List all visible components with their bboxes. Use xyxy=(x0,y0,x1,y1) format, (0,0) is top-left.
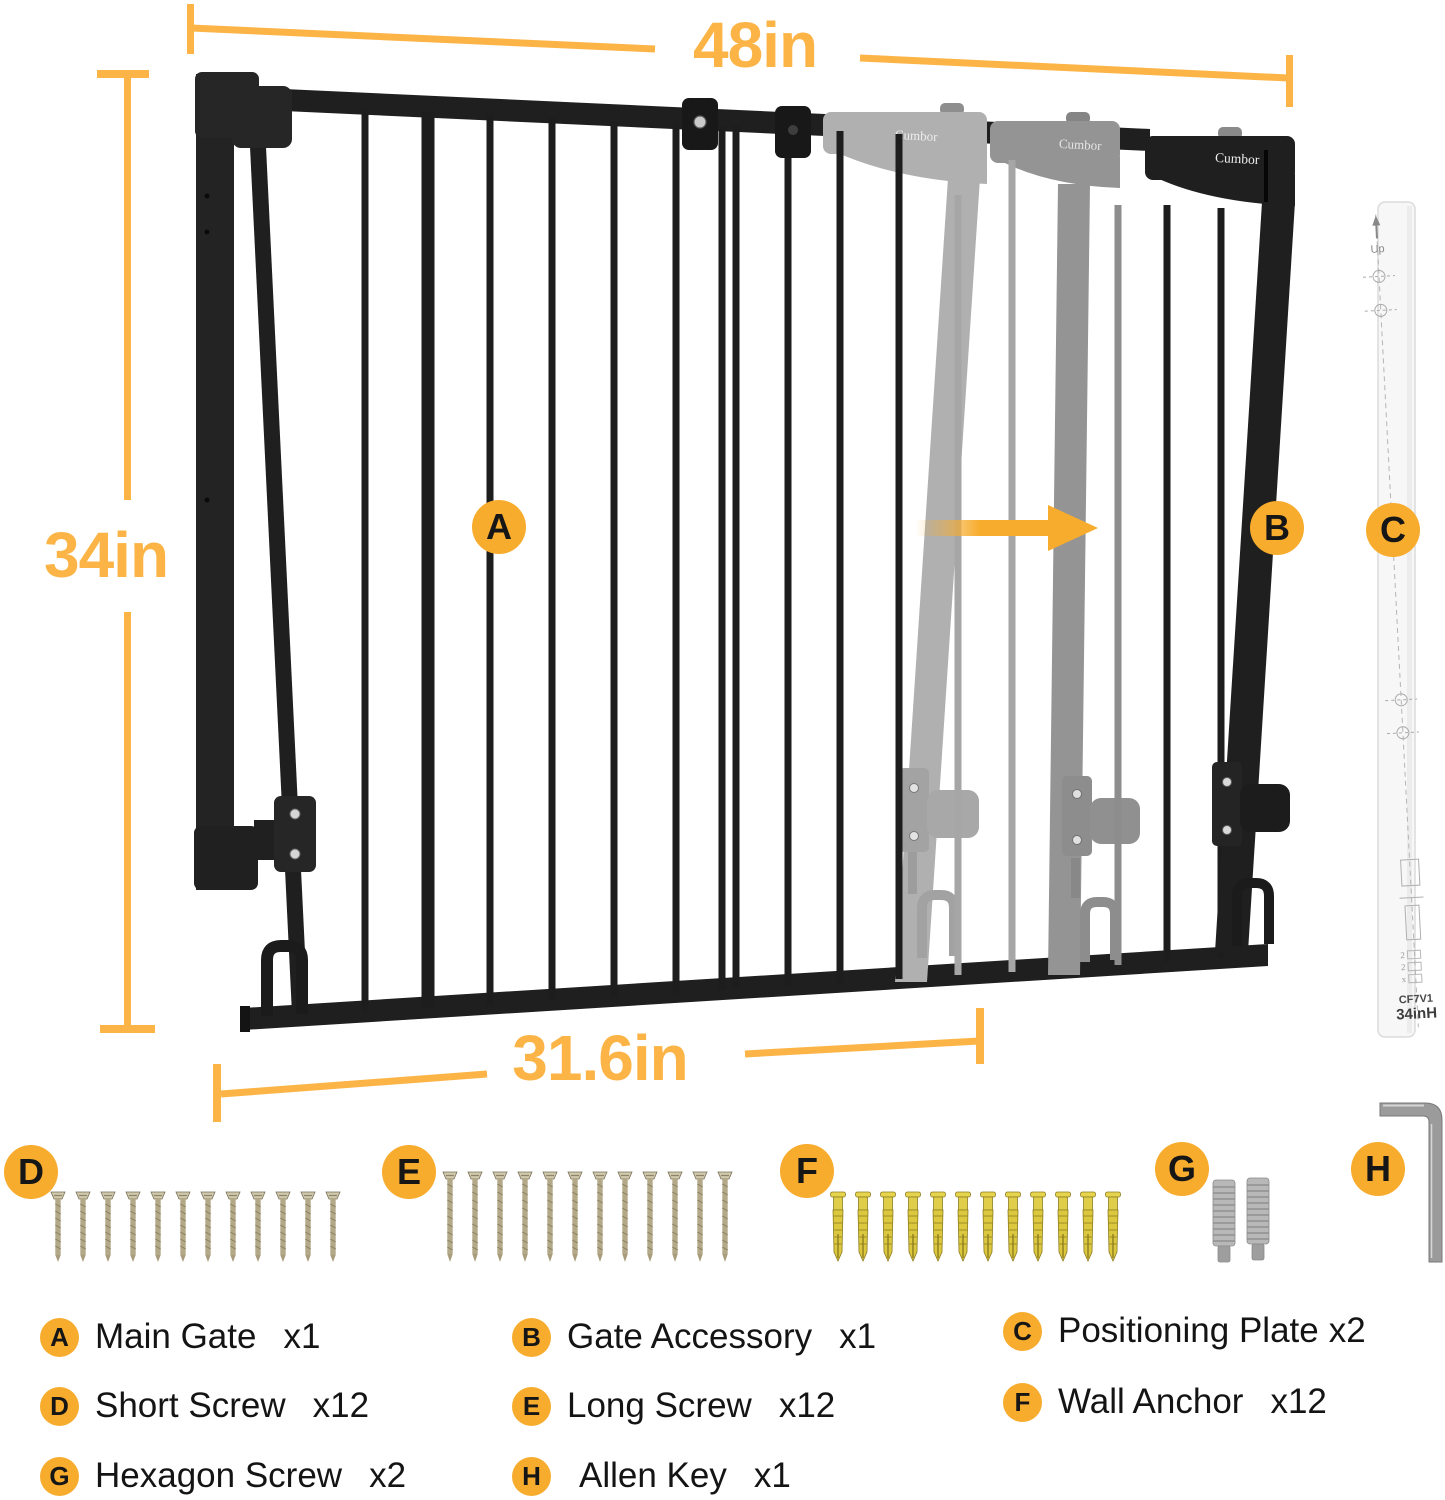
product-diagram: Up 2 2 x CF7V1 34i xyxy=(0,0,1445,1500)
legend-item-allen-key: H Allen Key x1 xyxy=(512,1456,791,1496)
long-screws-group xyxy=(443,1172,732,1262)
legend-count-f: x12 xyxy=(1270,1382,1326,1422)
legend-label-f: Wall Anchor xyxy=(1058,1382,1243,1422)
legend-count-e: x12 xyxy=(779,1386,835,1426)
legend-count-h: x1 xyxy=(754,1456,791,1496)
legend-badge-c: C xyxy=(1003,1312,1042,1351)
legend-item-positioning-plate: C Positioning Plate x2 xyxy=(1003,1311,1366,1351)
badge-long-screw: E xyxy=(382,1145,436,1199)
badge-short-screw: D xyxy=(4,1145,58,1199)
legend-badge-b: B xyxy=(512,1318,551,1357)
gate-bars xyxy=(365,109,1221,1012)
plate-up-label: Up xyxy=(1370,243,1385,256)
gate-illustration: Up 2 2 x CF7V1 34i xyxy=(0,0,1445,1500)
badge-wall-anchor: F xyxy=(780,1144,834,1198)
positioning-plate: Up 2 2 x CF7V1 34i xyxy=(1354,202,1437,1037)
legend-item-hexagon-screw: G Hexagon Screw x2 xyxy=(40,1456,406,1496)
badge-positioning-plate: C xyxy=(1366,503,1420,557)
legend-badge-g: G xyxy=(40,1457,79,1496)
hexagon-screws-group xyxy=(1213,1178,1269,1262)
legend-label-d: Short Screw xyxy=(95,1386,286,1426)
legend-item-long-screw: E Long Screw x12 xyxy=(512,1386,835,1426)
legend-item-short-screw: D Short Screw x12 xyxy=(40,1386,369,1426)
brand-wordmark-ghost-2: Cumbor xyxy=(1059,136,1103,153)
legend-label-e: Long Screw xyxy=(567,1386,752,1426)
brand-wordmark-solid: Cumbor xyxy=(1215,150,1260,167)
wall-anchors-group xyxy=(831,1192,1121,1261)
legend-item-main-gate: A Main Gate x1 xyxy=(40,1317,320,1357)
legend-count-c: x2 xyxy=(1329,1311,1366,1351)
gate-rails xyxy=(240,88,1268,1032)
legend-badge-a: A xyxy=(40,1318,79,1357)
plate-mark-1: 2 xyxy=(1400,950,1405,960)
badge-gate-accessory: B xyxy=(1250,501,1304,555)
gate-accessory-ghost-1: Cumbor xyxy=(823,103,987,982)
legend-badge-h: H xyxy=(512,1457,551,1496)
legend-label-h: Allen Key xyxy=(579,1456,727,1496)
legend-label-b: Gate Accessory xyxy=(567,1317,812,1357)
legend-badge-f: F xyxy=(1003,1383,1042,1422)
legend-count-d: x12 xyxy=(313,1386,369,1426)
legend-count-g: x2 xyxy=(369,1456,406,1496)
plate-mark-2: 2 xyxy=(1401,962,1406,972)
legend-badge-d: D xyxy=(40,1387,79,1426)
plate-size-label: 34inH xyxy=(1396,1004,1438,1023)
badge-hexagon-screw: G xyxy=(1155,1142,1209,1196)
badge-main-gate: A xyxy=(472,500,526,554)
legend-label-c: Positioning Plate xyxy=(1058,1311,1319,1351)
legend-count-b: x1 xyxy=(839,1317,876,1357)
dimension-bottom-width: 31.6in xyxy=(512,1021,687,1095)
dimension-left-height: 34in xyxy=(44,518,168,592)
dimension-top-width: 48in xyxy=(693,8,817,82)
short-screws-group xyxy=(51,1192,340,1262)
badge-allen-key: H xyxy=(1351,1142,1405,1196)
legend-item-gate-accessory: B Gate Accessory x1 xyxy=(512,1317,876,1357)
legend-label-a: Main Gate xyxy=(95,1317,256,1357)
legend-badge-e: E xyxy=(512,1387,551,1426)
legend-count-a: x1 xyxy=(283,1317,320,1357)
legend-label-g: Hexagon Screw xyxy=(95,1456,342,1496)
legend-item-wall-anchor: F Wall Anchor x12 xyxy=(1003,1382,1327,1422)
